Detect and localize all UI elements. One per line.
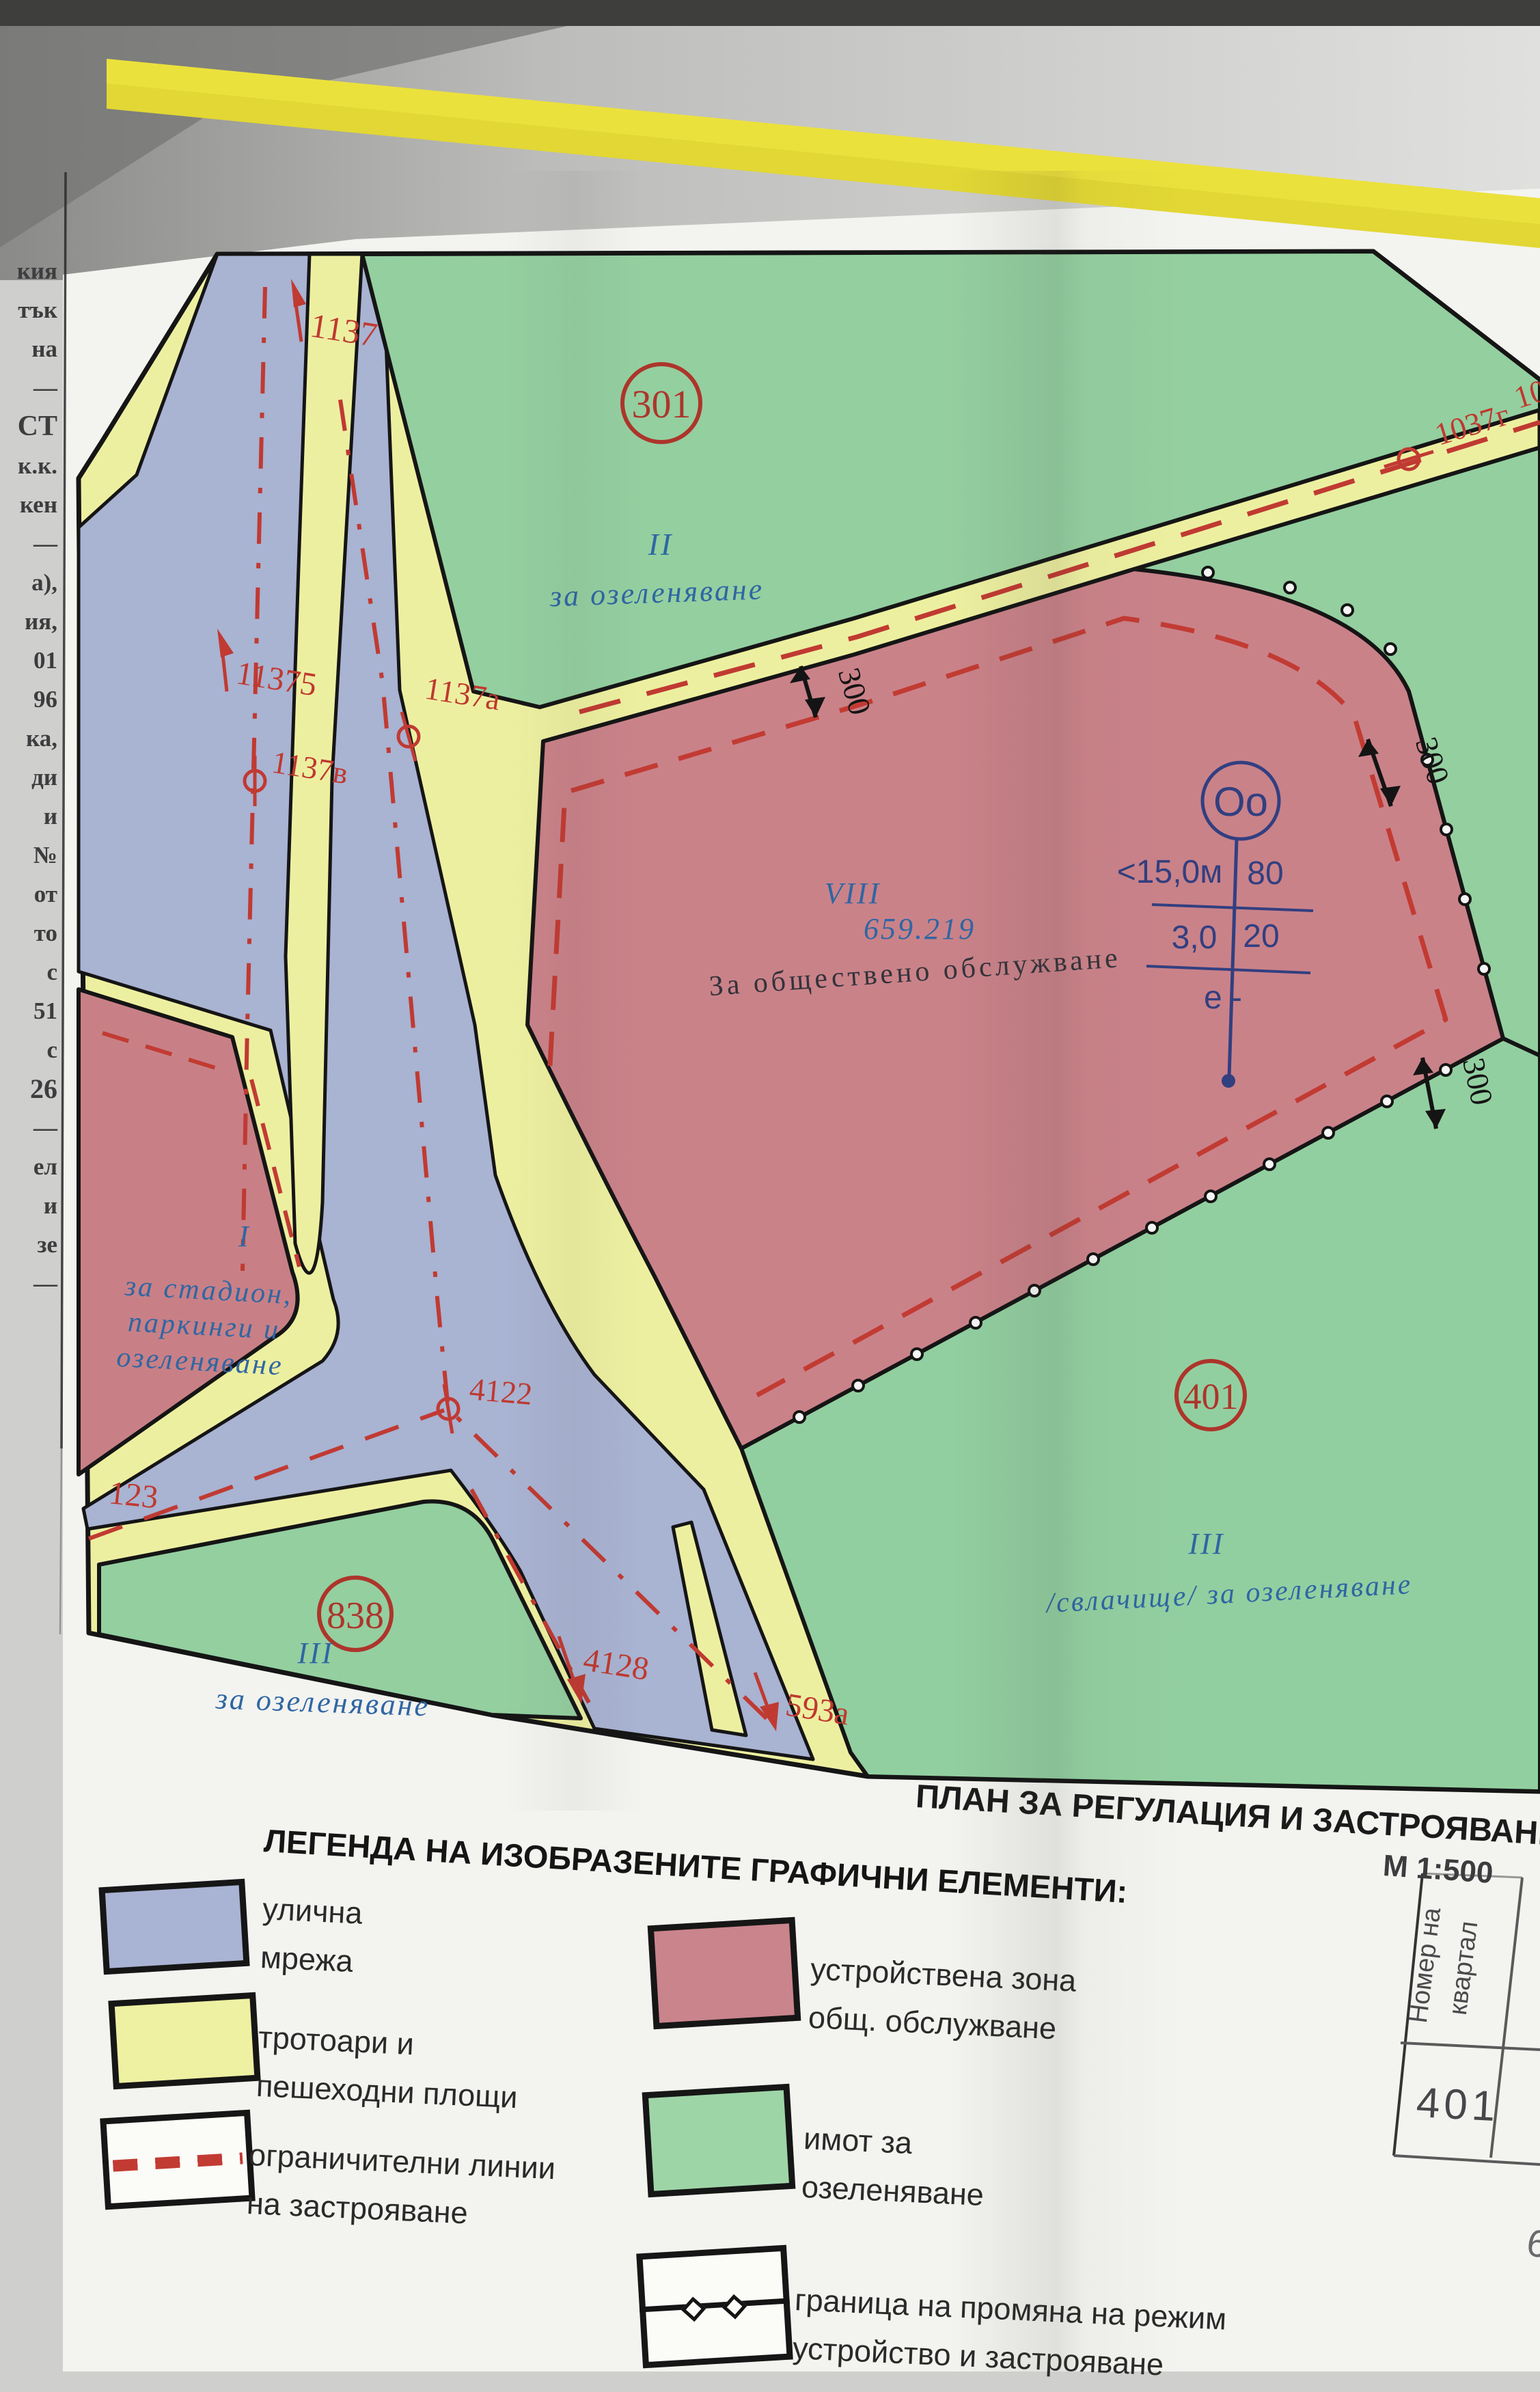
margin-fragment: ия, [0, 602, 57, 641]
margin-fragment: ел [0, 1147, 57, 1186]
margin-fragment: и [0, 1186, 57, 1225]
margin-fragment: на [0, 329, 57, 368]
legend-label-greenery: имот за озеленяване [801, 2114, 987, 2219]
margin-fragment: — [0, 368, 57, 407]
margin-fragment: 26 [0, 1069, 57, 1108]
margin-fragment: № [0, 836, 57, 875]
boundary-dot-icon [680, 2297, 706, 2322]
margin-fragment: 96 [0, 680, 57, 719]
margin-fragment: 01 [0, 641, 57, 680]
margin-fragment: — [0, 1264, 57, 1303]
zone-red-i-numeral: I [238, 1220, 251, 1253]
legend-label-building-limit-lines: ограничителни линии на застрояване [246, 2130, 557, 2241]
zone-green-401-numeral: III [1188, 1527, 1225, 1561]
legend-swatch-street-network [98, 1879, 249, 1975]
margin-fragment: и [0, 797, 57, 836]
legend-swatch-greenery [642, 2084, 796, 2198]
legend-label-service-zone: устройствена зона общ. обслужване [808, 1944, 1077, 2054]
legend-swatch-service-zone [648, 1917, 801, 2030]
zone-red-viii-area: 659.219 [864, 912, 976, 946]
scanner-shadow-strip [0, 0, 1540, 26]
legend-label-line: мрежа [260, 1933, 361, 1986]
legend-label-line: улична [262, 1884, 363, 1938]
margin-fragment: с [0, 952, 57, 991]
margin-fragment: — [0, 1108, 57, 1147]
legend-label-street-network: улична мрежа [260, 1884, 364, 1986]
label-4122: 4122 [468, 1371, 534, 1412]
margin-fragment: ди [0, 758, 57, 797]
indicator-density: 80 [1247, 855, 1283, 892]
legend-label-regime-boundary: граница на промяна на режим устройство и… [792, 2275, 1228, 2392]
indicator-floors: 3,0 [1172, 920, 1218, 956]
label-123: 123 [107, 1474, 160, 1515]
margin-fragment: к.к. [0, 446, 57, 485]
margin-fragment: тък [0, 290, 57, 329]
legend-swatch-sidewalks [108, 1992, 260, 2090]
margin-fragment: ка, [0, 719, 57, 758]
legend-label-line: имот за [803, 2114, 987, 2171]
margin-fragment: зе [0, 1225, 57, 1264]
legend-label-sidewalks: тротоари и пешеходни площи [256, 2013, 521, 2121]
map-area: 1137 11375 1137в 1137а 1037г 10 4122 123… [79, 251, 1540, 1791]
zone-red-viii-numeral: VIII [825, 877, 881, 910]
table-block-value: 401 [1415, 2079, 1500, 2130]
margin-fragment: кия [0, 251, 57, 290]
scanned-zoning-plan-page: { "page_title": "ПЛАН ЗА РЕГУЛАЦИЯ И ЗАС… [0, 0, 1540, 2372]
margin-fragment: с [0, 1030, 57, 1069]
margin-fragment: кен [0, 485, 57, 524]
boundary-dot-icon [722, 2294, 747, 2320]
boundary-line-icon [640, 2298, 790, 2312]
margin-fragment: СТ [0, 407, 57, 446]
legend-swatch-regime-boundary [636, 2245, 793, 2369]
adjacent-page-text-fragments: кия тък на — СТ к.к. кен — а), ия, 01 96… [0, 251, 57, 1303]
margin-fragment: — [0, 524, 57, 563]
margin-fragment: от [0, 875, 57, 913]
block-401: 401 [1183, 1376, 1239, 1417]
red-dashed-line-icon [113, 2153, 243, 2172]
indicator-intensity: 20 [1243, 918, 1279, 954]
margin-fragment: 51 [0, 991, 57, 1030]
zone-green-838-numeral: III [297, 1636, 334, 1670]
indicator-circle-text: Oo [1213, 779, 1268, 825]
block-301: 301 [632, 382, 691, 426]
legend-swatch-building-limit-lines [100, 2110, 256, 2210]
indicator-height: <15,0м [1117, 854, 1222, 890]
margin-fragment: то [0, 913, 57, 952]
zone-green-top-numeral: II [648, 527, 674, 562]
margin-fragment: а), [0, 563, 57, 602]
block-838: 838 [327, 1595, 384, 1637]
legend-label-line: озеленяване [801, 2162, 985, 2219]
indicator-note: е - [1204, 980, 1242, 1016]
